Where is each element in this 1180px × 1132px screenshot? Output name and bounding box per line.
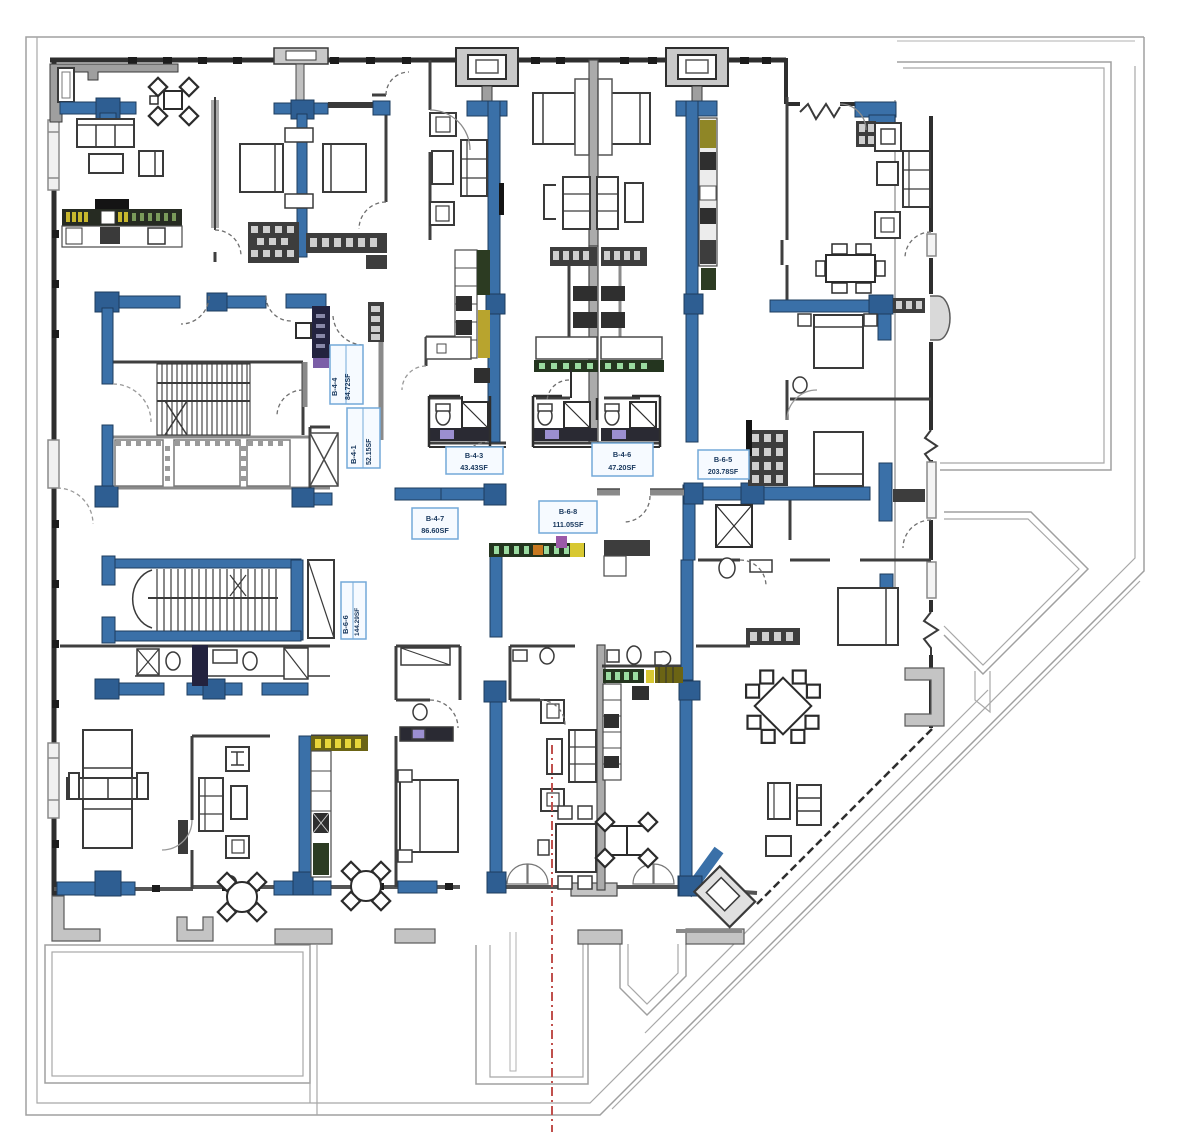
svg-text:47.20SF: 47.20SF — [608, 463, 636, 472]
svg-text:43.43SF: 43.43SF — [460, 463, 488, 472]
svg-text:B-4-1: B-4-1 — [349, 445, 358, 464]
svg-text:86.60SF: 86.60SF — [421, 526, 449, 535]
svg-text:B-6-6: B-6-6 — [341, 615, 350, 634]
svg-text:111.05SF: 111.05SF — [553, 520, 584, 529]
svg-text:B-6-5: B-6-5 — [714, 455, 732, 464]
svg-text:84.72SF: 84.72SF — [345, 373, 352, 400]
svg-text:52.15SF: 52.15SF — [366, 438, 373, 465]
svg-text:B-6-8: B-6-8 — [559, 507, 577, 516]
svg-text:B-4-4: B-4-4 — [330, 377, 339, 396]
svg-text:B-4-3: B-4-3 — [465, 451, 483, 460]
svg-text:B-4-6: B-4-6 — [613, 450, 631, 459]
svg-text:B-4-7: B-4-7 — [426, 514, 444, 523]
svg-text:203.78SF: 203.78SF — [708, 469, 739, 476]
svg-text:144.29SF: 144.29SF — [354, 608, 361, 636]
